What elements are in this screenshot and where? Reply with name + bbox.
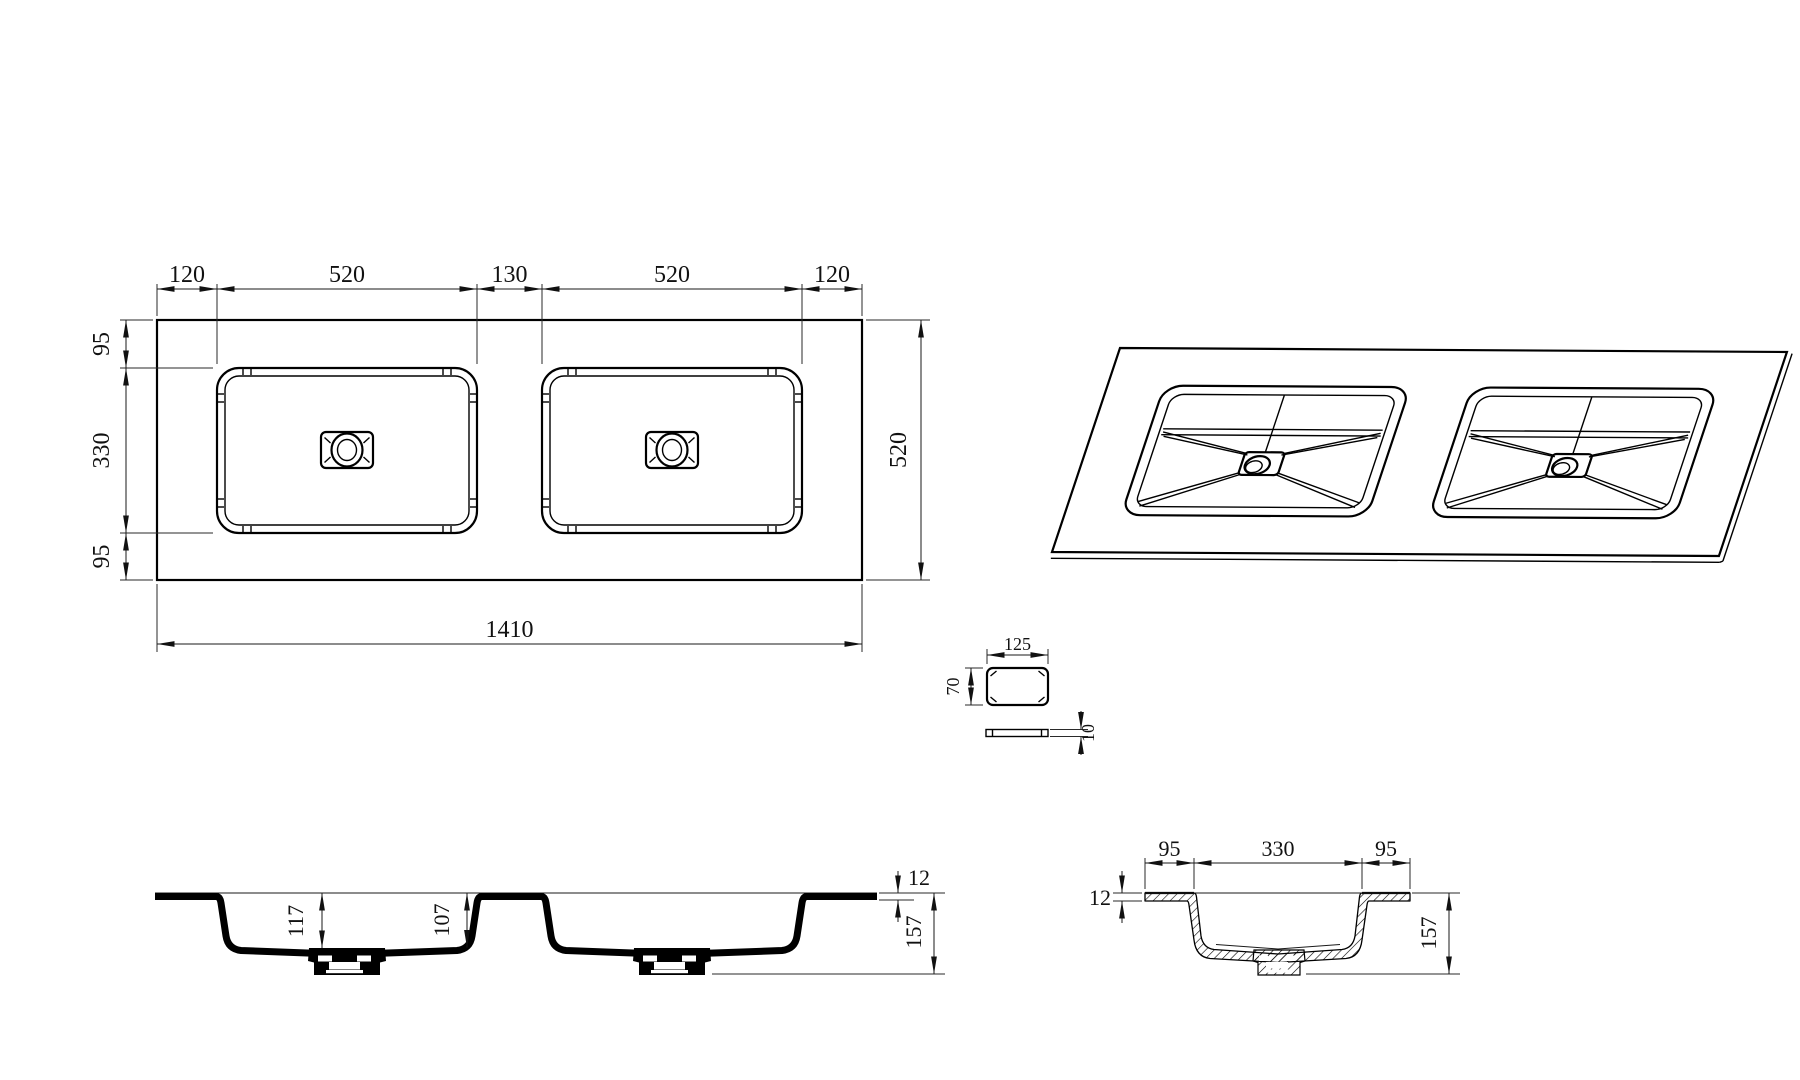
- dim-plate-width: 125: [1004, 634, 1031, 654]
- iso-countertop-outline: [1052, 348, 1787, 556]
- dim-plan-basin-depth: 330: [89, 433, 115, 469]
- faucet-plate-height-dimension: 70: [943, 668, 983, 705]
- side-height-dimension: 157: [1306, 893, 1460, 974]
- dim-front-depth-left: 117: [283, 905, 308, 937]
- dim-plan-top-margin: 95: [89, 332, 115, 356]
- dim-plan-basin1-width: 520: [329, 262, 365, 288]
- side-section-view: 95 330 95 12 157: [1089, 836, 1460, 975]
- faucet-plate-side-view: [986, 730, 1048, 737]
- technical-drawing-page: 120 520 130 520 120 95 330 95 520: [0, 0, 1800, 1080]
- dim-front-depth-right: 107: [429, 904, 454, 937]
- dim-front-height: 157: [901, 916, 926, 949]
- plan-countertop-outline: [157, 320, 862, 580]
- isometric-view: [1050, 348, 1793, 562]
- faucet-plate-edge-outline: [986, 730, 1048, 737]
- dim-side-front-margin: 95: [1159, 836, 1181, 861]
- faucet-plate-width-dimension: 125: [987, 634, 1048, 664]
- dim-plan-left-offset: 120: [169, 262, 205, 288]
- front-section-profile: [155, 897, 877, 955]
- front-depth-dimension-right: 107: [429, 893, 467, 948]
- plan-view: 120 520 130 520 120 95 330 95 520: [89, 262, 930, 652]
- front-depth-dimension-left: 117: [283, 893, 322, 948]
- front-section-view: 117 107 12 157: [155, 865, 945, 975]
- front-height-dimension: 157: [712, 893, 945, 974]
- dim-plan-overall-depth: 520: [886, 432, 912, 468]
- plan-bottom-dimension: 1410: [157, 584, 862, 652]
- faucet-plate-outline: [987, 668, 1048, 705]
- dim-side-height: 157: [1416, 917, 1441, 950]
- side-top-dimensions: 95 330 95: [1145, 836, 1410, 889]
- dim-plan-basin2-width: 520: [654, 262, 690, 288]
- iso-basin-right: [1429, 387, 1718, 518]
- plan-top-dimensions: 120 520 130 520 120: [157, 262, 862, 364]
- iso-slab-thickness-bottom: [1051, 558, 1720, 562]
- technical-drawing-canvas: 120 520 130 520 120 95 330 95 520: [0, 0, 1800, 1080]
- iso-basin-left: [1121, 386, 1410, 517]
- side-back-wall-line: [1216, 945, 1340, 950]
- faucet-plate-detail-view: 125 70 10: [943, 634, 1098, 755]
- side-drain-boss: [1253, 950, 1305, 975]
- dim-side-back-margin: 95: [1375, 836, 1397, 861]
- iso-slab-thickness-right: [1723, 354, 1792, 562]
- dim-plan-right-offset: 120: [814, 262, 850, 288]
- dim-side-basin-width: 330: [1262, 836, 1295, 861]
- iso-slab-thickness-corner: [1720, 561, 1723, 562]
- dim-side-thickness: 12: [1089, 885, 1111, 910]
- dim-front-thickness: 12: [908, 865, 930, 890]
- dim-plan-gap: 130: [492, 262, 528, 288]
- dim-plate-height: 70: [943, 678, 963, 696]
- side-thickness-dimension: 12: [1089, 871, 1142, 923]
- plan-basin-right: [542, 368, 802, 533]
- dim-plan-overall-width: 1410: [486, 617, 534, 643]
- plan-basin-left: [217, 368, 477, 533]
- front-drain-boss-right: [633, 948, 711, 975]
- plan-left-dimensions: 95 330 95: [89, 320, 213, 580]
- dim-plate-thickness: 10: [1078, 724, 1098, 742]
- plan-right-dimension: 520: [866, 320, 930, 580]
- front-drain-boss-left: [308, 948, 386, 975]
- faucet-plate-thickness-dimension: 10: [1050, 711, 1098, 755]
- dim-plan-bottom-margin: 95: [89, 545, 115, 569]
